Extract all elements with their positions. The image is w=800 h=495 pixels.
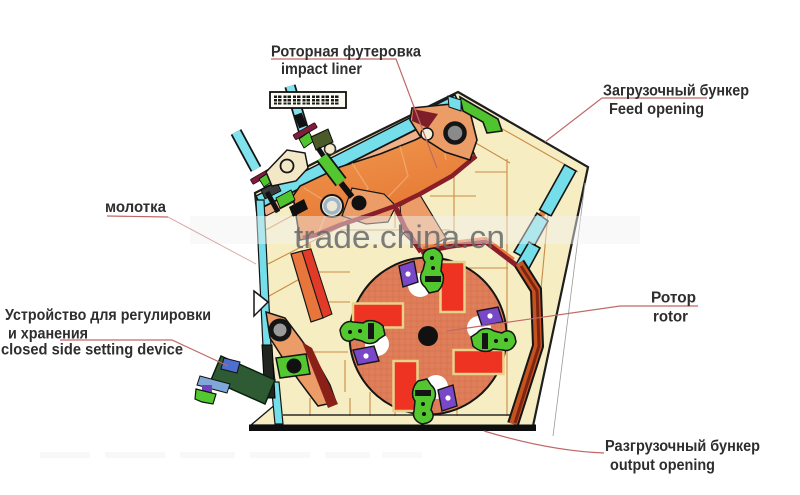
svg-text:impact liner: impact liner <box>281 61 362 78</box>
svg-text:молотка: молотка <box>105 199 166 216</box>
svg-text:Разгрузочный бункер: Разгрузочный бункер <box>605 438 760 455</box>
svg-text:rotor: rotor <box>653 309 688 326</box>
svg-text:и хранения: и хранения <box>8 326 88 343</box>
svg-text:Роторная футеровка: Роторная футеровка <box>271 44 421 61</box>
svg-text:closed side setting device: closed side setting device <box>1 342 183 359</box>
svg-text:trade.china.cn: trade.china.cn <box>294 219 505 255</box>
svg-text:output opening: output opening <box>610 457 715 474</box>
svg-text:Загрузочный бункер: Загрузочный бункер <box>603 83 749 100</box>
svg-text:Ротор: Ротор <box>651 290 696 307</box>
svg-text:Feed opening: Feed opening <box>609 101 704 118</box>
svg-text:Устройство для регулировки: Устройство для регулировки <box>5 307 211 324</box>
